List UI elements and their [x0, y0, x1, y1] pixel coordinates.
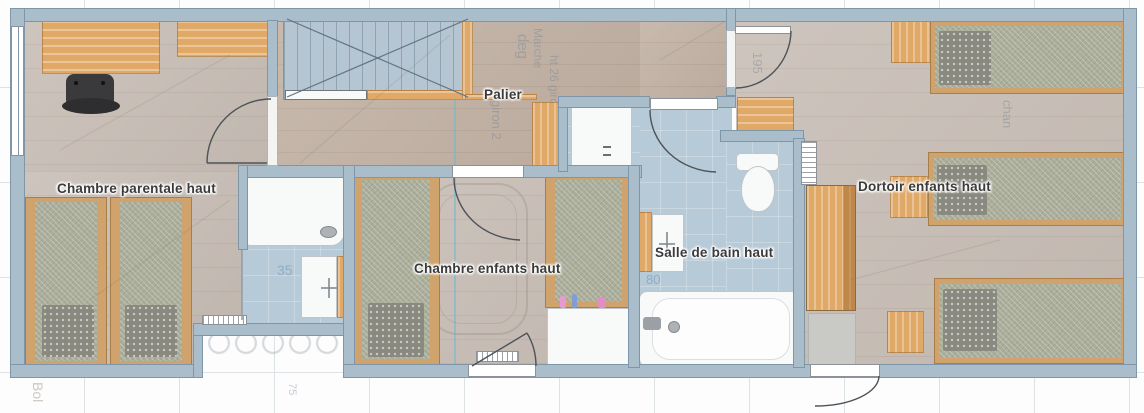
wall-right: [1123, 8, 1137, 378]
room-label-chambre-enfants: Chambre enfants haut: [414, 261, 561, 276]
wall-enfants-right: [628, 165, 640, 368]
ghost-text-bol: Bol: [30, 382, 46, 402]
dresser-palier[interactable]: [737, 97, 794, 134]
ghost-text-chan: chan: [1000, 100, 1015, 128]
wall-bottom-west: [10, 364, 203, 378]
wall-bath-top-west: [558, 96, 650, 108]
bathtub-faucet: [643, 317, 661, 330]
pillow: [125, 305, 177, 357]
radiator-bathroom[interactable]: [801, 141, 817, 185]
wall-toilet-nook-top: [720, 130, 804, 142]
window-mullion: [18, 27, 19, 155]
staircase[interactable]: [283, 16, 473, 100]
office-chair-base: [62, 98, 120, 114]
ghost-text-giron2: giron 2: [489, 100, 504, 140]
desk[interactable]: [42, 20, 160, 74]
pillow: [939, 31, 991, 85]
bed-parentale-2[interactable]: [110, 197, 192, 368]
stair-wood-post: [462, 16, 473, 100]
door-swing-dortoir-bottom-arc: [815, 376, 879, 406]
wall-enfants-left: [343, 165, 355, 365]
pillow: [368, 303, 424, 357]
bed-enfants-2[interactable]: [545, 175, 632, 308]
door-leaf-bathroom[interactable]: [650, 98, 718, 110]
nightstand-3[interactable]: [887, 311, 924, 353]
room-label-dortoir: Dortoir enfants haut: [858, 179, 991, 194]
dresser-parentale[interactable]: [177, 20, 271, 57]
floor-plan-canvas: deg Marche ht 26 giron 2 giron 2 195 35 …: [0, 0, 1144, 413]
bed-dortoir-3[interactable]: [934, 278, 1126, 364]
bed-dortoir-1[interactable]: [930, 20, 1126, 94]
door-leaf-enfants-bottom[interactable]: [468, 364, 536, 377]
wall-parentale-palier-upper: [267, 20, 278, 99]
office-chair-armrest-right: [101, 81, 105, 85]
door-leaf-enfants-top[interactable]: [452, 165, 524, 178]
shower-drain: [320, 226, 337, 238]
towel-radiator-shower[interactable]: [202, 315, 247, 325]
bed-parentale-1[interactable]: [25, 197, 107, 368]
dresser-enfants[interactable]: [547, 308, 632, 366]
door-leaf-dortoir-bottom[interactable]: [810, 364, 880, 377]
ghost-text-75: 75: [286, 383, 298, 395]
wall-bath-top-east: [716, 96, 736, 108]
tallboy-palier[interactable]: [532, 102, 560, 167]
wall-shower-enfants-top: [238, 165, 642, 178]
wall-top: [10, 8, 1137, 22]
washing-machine-control: [603, 146, 611, 148]
dresser-item-pink: [560, 296, 566, 308]
toilet-bowl: [741, 166, 775, 212]
radiator-enfants[interactable]: [476, 351, 519, 362]
door-opening-parentale[interactable]: [267, 96, 278, 166]
floor-palier-east: [640, 20, 736, 108]
washing-machine[interactable]: [571, 107, 632, 170]
bathtub-drain: [668, 321, 680, 333]
room-label-chambre-parentale: Chambre parentale haut: [57, 181, 216, 196]
door-leaf-dortoir-top[interactable]: [735, 26, 791, 34]
pillow: [42, 305, 94, 357]
room-label-salle-de-bain: Salle de bain haut: [655, 245, 773, 260]
stair-railing: [285, 90, 367, 100]
wardrobe[interactable]: [806, 185, 856, 311]
ghost-text-80: 80: [646, 272, 660, 287]
shower-sink[interactable]: [301, 256, 337, 318]
washing-machine-control2: [603, 154, 611, 156]
ghost-text-deg: deg: [514, 34, 531, 59]
stair-wood-rail: [367, 90, 465, 100]
wall-shower-left: [238, 165, 248, 250]
nightstand-1[interactable]: [891, 20, 931, 63]
wall-bottom-main: [343, 364, 1137, 378]
room-label-palier: Palier: [484, 87, 522, 102]
wardrobe-right-panel: [843, 186, 855, 310]
ghost-text-marche: Marche: [531, 28, 545, 68]
ghost-bathtub-outline: [428, 183, 528, 335]
pillow: [943, 289, 997, 351]
ghost-text-195: 195: [750, 52, 765, 74]
office-chair-armrest-left: [74, 81, 78, 85]
door-opening-dortoir[interactable]: [726, 30, 736, 88]
dresser-item-pink2: [598, 297, 606, 308]
dresser-item-blue: [572, 294, 577, 308]
window-parentale-west[interactable]: [11, 26, 24, 156]
mattress: [555, 180, 622, 302]
ghost-text-35: 35: [277, 262, 293, 278]
dortoir-mat: [808, 313, 856, 366]
bath-sink[interactable]: [652, 214, 684, 272]
